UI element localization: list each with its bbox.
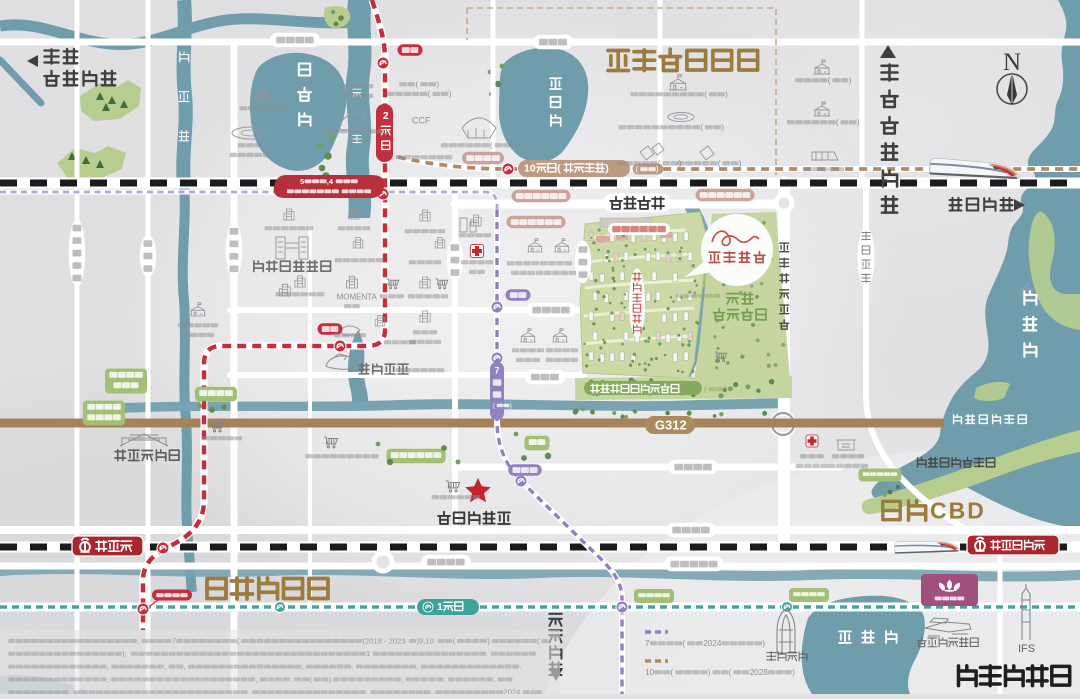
svg-text:): ): [762, 639, 765, 648]
svg-text:1: 1: [437, 601, 443, 613]
svg-text:)9,10: )9,10: [417, 636, 434, 645]
svg-text:(: (: [670, 668, 673, 677]
svg-text:1: 1: [366, 649, 370, 658]
svg-text:): ): [857, 118, 860, 127]
svg-text:): ): [849, 76, 852, 85]
svg-text:(: (: [704, 90, 707, 99]
svg-text:): ): [510, 403, 512, 410]
svg-text:4: 4: [530, 688, 534, 694]
svg-text:): ): [511, 141, 514, 150]
svg-text:.: .: [366, 688, 368, 694]
svg-text:CCF: CCF: [412, 116, 431, 126]
svg-text:): ): [721, 123, 724, 132]
svg-text:,: ,: [248, 688, 250, 694]
svg-text:,: ,: [184, 662, 186, 671]
svg-text:MOMENTA: MOMENTA: [337, 293, 378, 302]
svg-text:): ): [724, 385, 727, 394]
svg-text:(: (: [416, 80, 419, 89]
svg-text:.: .: [486, 649, 488, 658]
svg-text:.: .: [431, 688, 433, 694]
svg-text:7: 7: [494, 366, 499, 376]
svg-text:2024: 2024: [703, 639, 722, 648]
svg-text:(2018 - 2023: (2018 - 2023: [363, 636, 406, 645]
svg-text:10: 10: [524, 162, 536, 174]
svg-text:): ): [449, 90, 452, 99]
svg-text:7: 7: [645, 639, 650, 648]
svg-text:(: (: [364, 127, 367, 136]
svg-text:,: ,: [137, 636, 139, 645]
svg-text:G312: G312: [655, 417, 687, 432]
svg-text:(: (: [658, 159, 661, 168]
svg-text:,: ,: [417, 662, 419, 671]
svg-text:(: (: [828, 76, 831, 85]
svg-text::: :: [290, 675, 292, 684]
svg-text:): ): [739, 159, 742, 168]
svg-text:(: (: [704, 385, 707, 394]
svg-text:5: 5: [300, 177, 304, 186]
svg-text:10: 10: [645, 668, 655, 677]
svg-text:,: ,: [107, 662, 109, 671]
svg-text:(: (: [557, 162, 561, 174]
svg-text:.: .: [352, 662, 354, 671]
svg-text:(: (: [836, 118, 839, 127]
svg-text:): ): [792, 668, 795, 677]
svg-text:): ): [605, 162, 609, 174]
svg-text:2: 2: [383, 110, 389, 122]
svg-text:(: (: [490, 141, 493, 150]
svg-text:(: (: [682, 639, 685, 648]
svg-text:(: (: [636, 165, 639, 174]
svg-text::: :: [444, 675, 446, 684]
svg-text:,: ,: [401, 675, 403, 684]
svg-text:(: (: [729, 668, 732, 677]
svg-text:): ): [708, 668, 711, 677]
svg-text:2024: 2024: [504, 688, 521, 694]
svg-text:,: ,: [255, 675, 257, 684]
svg-text:,: ,: [69, 688, 71, 694]
svg-text:,: ,: [302, 662, 304, 671]
svg-text:2028: 2028: [750, 668, 769, 677]
svg-text:,4: ,4: [327, 177, 334, 186]
svg-text:CBD: CBD: [930, 497, 986, 523]
svg-text:(: (: [700, 123, 703, 132]
svg-text:,: ,: [164, 662, 166, 671]
svg-text:N: N: [1003, 49, 1021, 76]
svg-text:): ): [436, 80, 439, 89]
svg-text:(: (: [718, 159, 721, 168]
svg-text:(: (: [428, 90, 431, 99]
svg-text:IFS: IFS: [1018, 643, 1035, 655]
svg-text:,: ,: [107, 675, 109, 684]
svg-text:): ): [725, 90, 728, 99]
svg-text:): ): [385, 127, 388, 136]
svg-text:);: );: [122, 649, 127, 658]
svg-text:.: .: [493, 675, 495, 684]
svg-text:.: .: [542, 688, 544, 694]
svg-text:.: .: [520, 662, 522, 671]
svg-text:7: 7: [172, 636, 176, 645]
